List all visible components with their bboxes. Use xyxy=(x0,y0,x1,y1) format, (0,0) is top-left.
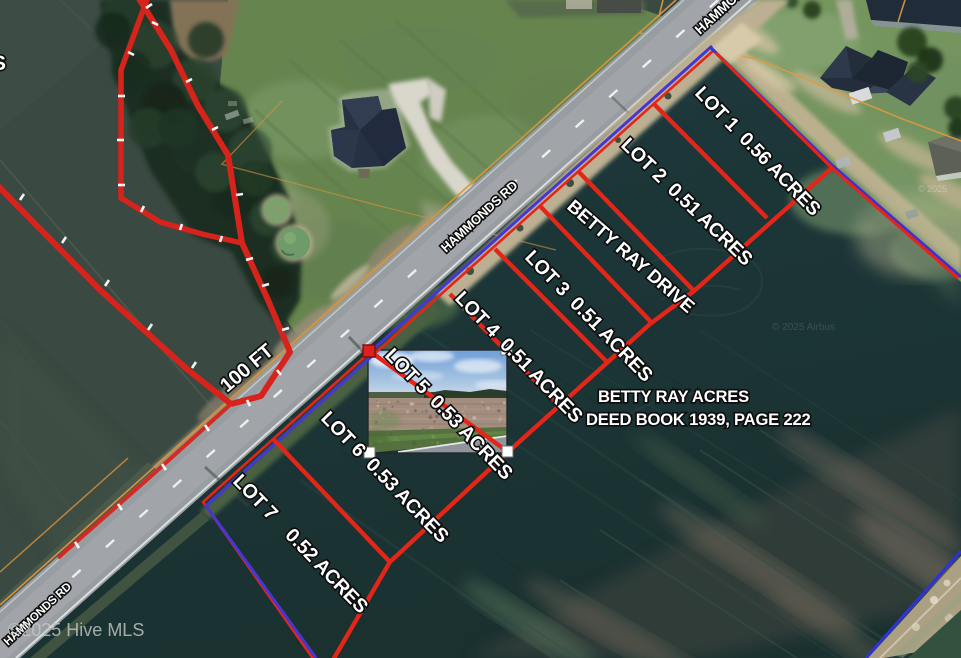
svg-text:© 2025 Airbus: © 2025 Airbus xyxy=(772,322,835,333)
svg-text:© 2025: © 2025 xyxy=(918,184,947,194)
svg-text:S: S xyxy=(0,52,6,75)
svg-text:DEED BOOK 1939, PAGE 222: DEED BOOK 1939, PAGE 222 xyxy=(586,410,811,429)
svg-text:BETTY RAY ACRES: BETTY RAY ACRES xyxy=(598,387,749,406)
svg-text:©2025 Hive MLS: ©2025 Hive MLS xyxy=(8,620,144,640)
